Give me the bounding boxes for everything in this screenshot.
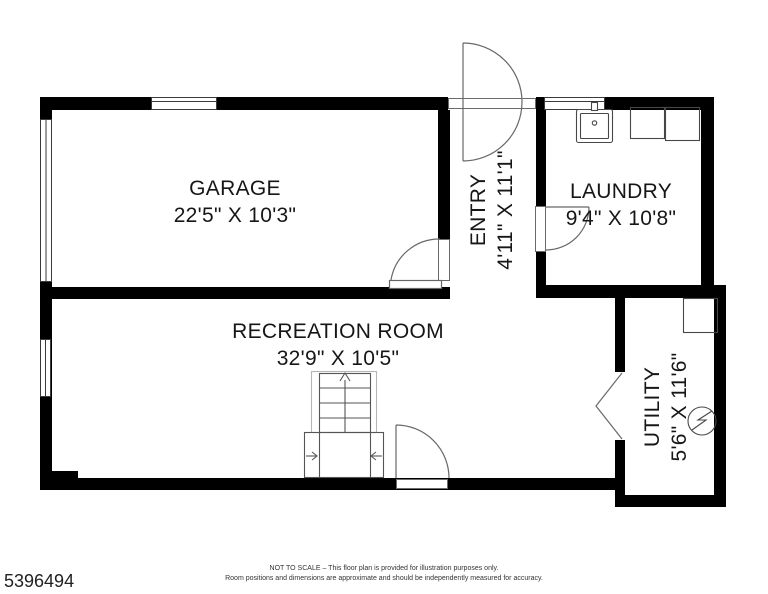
stair-right-arrow (371, 452, 382, 460)
opening-garage-entry (439, 240, 450, 281)
wall-bottom-left-step (43, 471, 78, 481)
recreation-room-dims: 32'9" X 10'5" (232, 345, 444, 372)
floor-plan-drawing (0, 0, 768, 594)
garage-name: GARAGE (174, 175, 297, 202)
garage-label: GARAGE 22'5" X 10'3" (174, 175, 297, 229)
window-garage-top (152, 98, 217, 110)
recreation-room-label: RECREATION ROOM 32'9" X 10'5" (232, 318, 444, 372)
wall-rec-bottom (40, 478, 625, 490)
wall-top-left-segment (40, 97, 448, 110)
entry-name: ENTRY (465, 150, 492, 269)
utility-door-chevron (596, 373, 622, 439)
washer-dryer-icon (631, 108, 700, 141)
opening-laundry (536, 207, 546, 252)
wall-laundry-left-upper (536, 110, 546, 206)
disclaimer: NOT TO SCALE – This floor plan is provid… (0, 564, 768, 584)
window-rec-left (41, 340, 51, 397)
laundry-dims: 9'4" X 10'8" (566, 205, 677, 232)
garage-entry-door (390, 239, 442, 289)
floor-plan-page: GARAGE 22'5" X 10'3" ENTRY 4'11" X 11'1"… (0, 0, 768, 594)
stair-left-arrow (306, 452, 317, 460)
window-garage-left (41, 120, 52, 282)
rec-room-bottom-door (396, 425, 449, 478)
disclaimer-line-1: NOT TO SCALE – This floor plan is provid… (0, 564, 768, 574)
laundry-label: LAUNDRY 9'4" X 10'8" (566, 178, 677, 232)
laundry-name: LAUNDRY (566, 178, 677, 205)
utility-dims: 5'6" X 11'6" (666, 352, 693, 461)
utility-label: UTILITY 5'6" X 11'6" (639, 352, 693, 461)
wall-utility-left-upper (615, 298, 625, 372)
wall-laundry-utility-horizontal (536, 285, 726, 298)
stair-ghost-outline (312, 372, 377, 433)
garage-dims: 22'5" X 10'3" (174, 202, 297, 229)
entry-dims: 4'11" X 11'1" (492, 150, 519, 269)
disclaimer-line-2: Room positions and dimensions are approx… (0, 574, 768, 584)
wall-utility-right (714, 285, 726, 507)
wall-utility-bottom (615, 495, 726, 507)
entry-label: ENTRY 4'11" X 11'1" (465, 150, 519, 269)
wall-garage-right-upper (438, 110, 450, 239)
utility-name: UTILITY (639, 352, 666, 461)
wall-garage-rec-divider (40, 287, 450, 299)
staircase (305, 372, 384, 478)
wall-laundry-right (701, 110, 714, 292)
opening-rec-bottom (397, 480, 448, 489)
recreation-room-name: RECREATION ROOM (232, 318, 444, 345)
furnace-icon (684, 299, 718, 333)
